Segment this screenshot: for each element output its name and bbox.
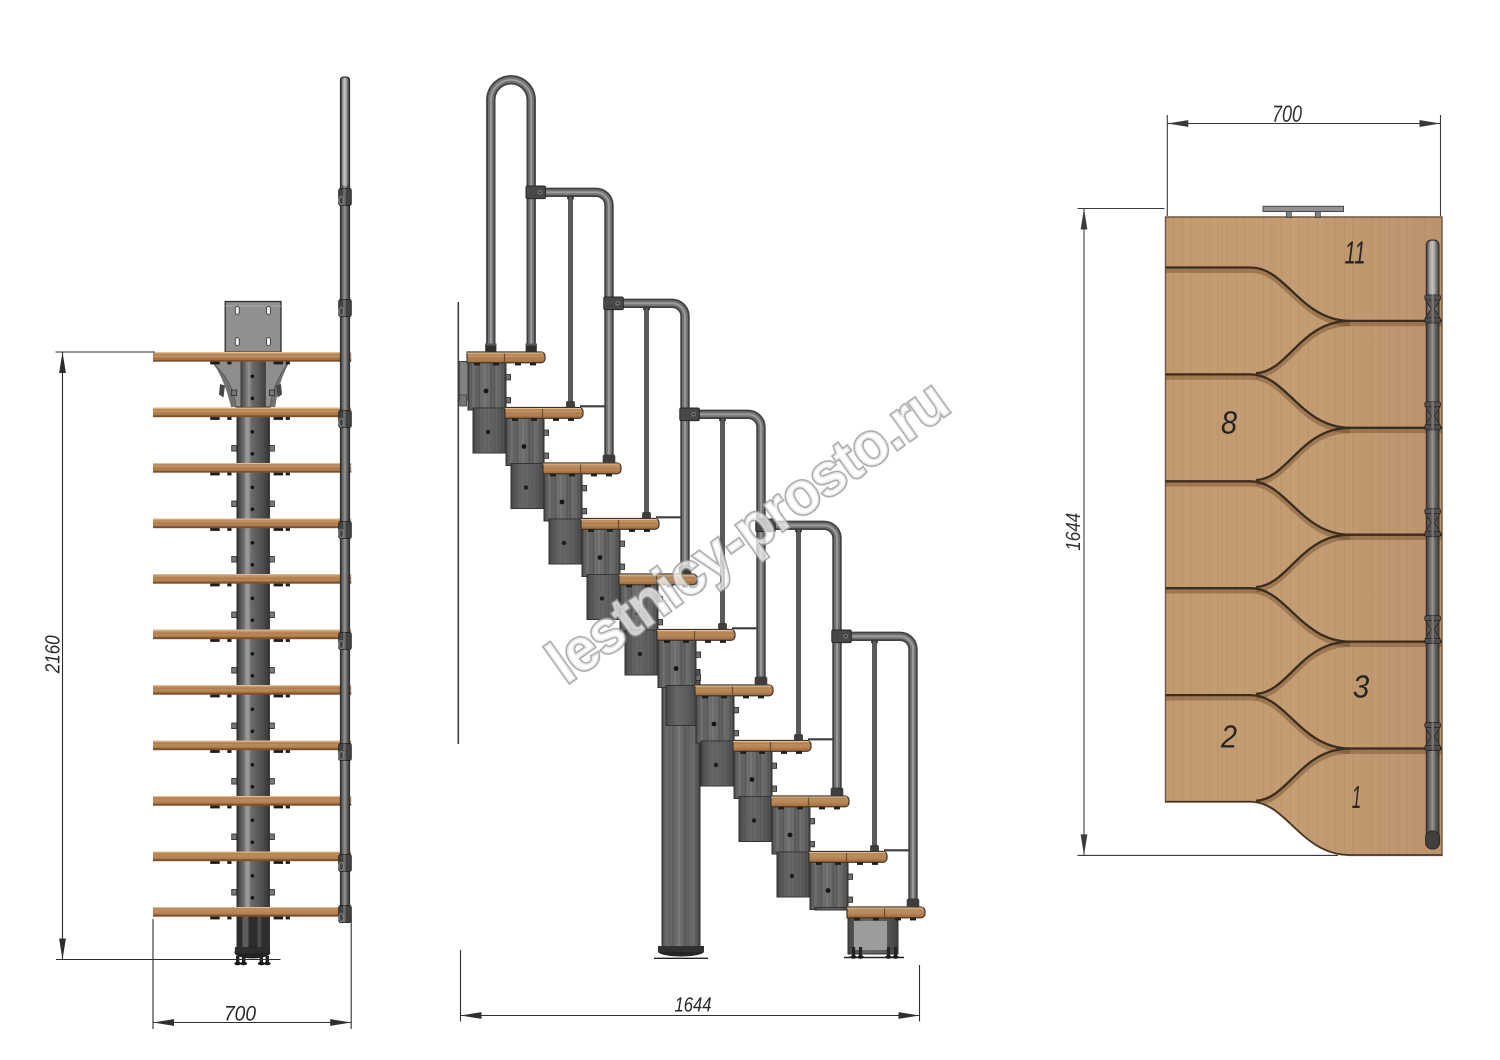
svg-text:3: 3 [1353,668,1370,704]
svg-text:700: 700 [224,1002,256,1025]
svg-text:1644: 1644 [674,993,711,1016]
svg-text:8: 8 [1221,404,1237,440]
svg-text:2: 2 [1220,718,1237,754]
svg-text:11: 11 [1344,234,1365,270]
svg-text:700: 700 [1272,101,1302,127]
svg-text:1: 1 [1352,779,1362,815]
svg-text:1644: 1644 [1062,513,1085,551]
svg-text:2160: 2160 [41,635,64,674]
